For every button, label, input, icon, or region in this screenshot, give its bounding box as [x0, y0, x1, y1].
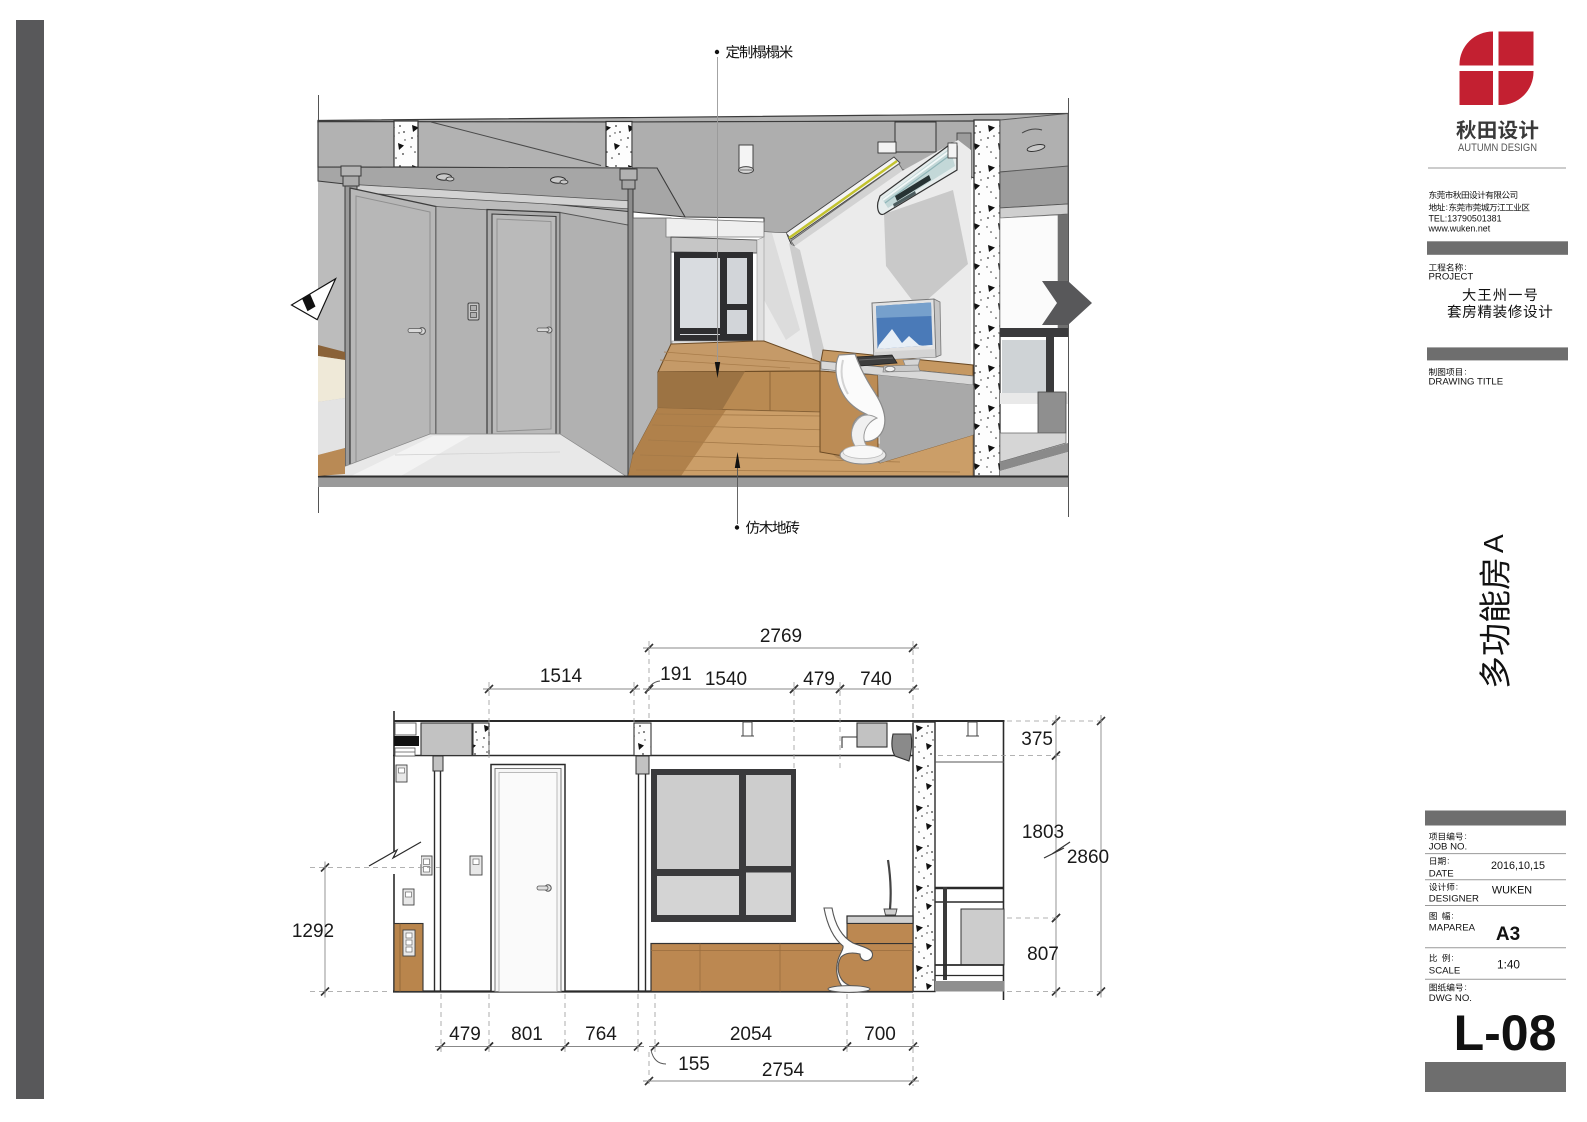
- svg-text:740: 740: [860, 669, 892, 690]
- svg-text:DESIGNER: DESIGNER: [1429, 894, 1479, 905]
- svg-text:1803: 1803: [1022, 822, 1064, 843]
- svg-text::: :: [1451, 952, 1453, 962]
- svg-text:DRAWING TITLE: DRAWING TITLE: [1429, 377, 1504, 388]
- svg-text::: :: [1465, 982, 1467, 992]
- svg-text:479: 479: [803, 669, 835, 690]
- svg-text:AUTUMN DESIGN: AUTUMN DESIGN: [1458, 142, 1537, 154]
- svg-text:A3: A3: [1496, 924, 1520, 945]
- svg-text:2860: 2860: [1067, 847, 1109, 868]
- svg-text:TEL:13790501381: TEL:13790501381: [1429, 214, 1502, 224]
- svg-text:375: 375: [1021, 729, 1053, 750]
- svg-text:801: 801: [511, 1024, 543, 1045]
- svg-text:191: 191: [660, 664, 692, 685]
- svg-text:2754: 2754: [762, 1060, 805, 1081]
- svg-text:807: 807: [1027, 944, 1059, 965]
- svg-text:PROJECT: PROJECT: [1429, 272, 1474, 283]
- svg-text::: :: [1465, 831, 1467, 841]
- svg-text:L-08: L-08: [1454, 1005, 1557, 1061]
- svg-text:479: 479: [449, 1024, 481, 1045]
- svg-text::: :: [1447, 855, 1449, 865]
- svg-text:DWG NO.: DWG NO.: [1429, 993, 1472, 1004]
- svg-text::: :: [1446, 202, 1448, 212]
- svg-text::: :: [1456, 881, 1458, 891]
- svg-text:JOB NO.: JOB NO.: [1429, 842, 1467, 853]
- svg-text:764: 764: [585, 1024, 617, 1045]
- svg-text:2769: 2769: [760, 626, 802, 647]
- svg-text:700: 700: [864, 1024, 896, 1045]
- svg-text::: :: [1464, 262, 1466, 272]
- svg-text:1540: 1540: [705, 669, 747, 690]
- svg-text:2054: 2054: [730, 1024, 773, 1045]
- svg-text:MAPAREA: MAPAREA: [1429, 923, 1476, 934]
- svg-text:DATE: DATE: [1429, 869, 1454, 880]
- svg-text:2016,10,15: 2016,10,15: [1491, 860, 1545, 872]
- svg-text::: :: [1451, 910, 1453, 920]
- svg-text:WUKEN: WUKEN: [1492, 885, 1532, 897]
- svg-text:1514: 1514: [540, 666, 583, 687]
- svg-text:A: A: [1478, 534, 1509, 553]
- svg-text::: :: [1464, 366, 1466, 376]
- svg-text:SCALE: SCALE: [1429, 966, 1460, 977]
- svg-text:1:40: 1:40: [1497, 958, 1520, 972]
- svg-text:155: 155: [678, 1054, 710, 1075]
- svg-text:1292: 1292: [292, 921, 334, 942]
- svg-text:www.wuken.net: www.wuken.net: [1428, 224, 1491, 234]
